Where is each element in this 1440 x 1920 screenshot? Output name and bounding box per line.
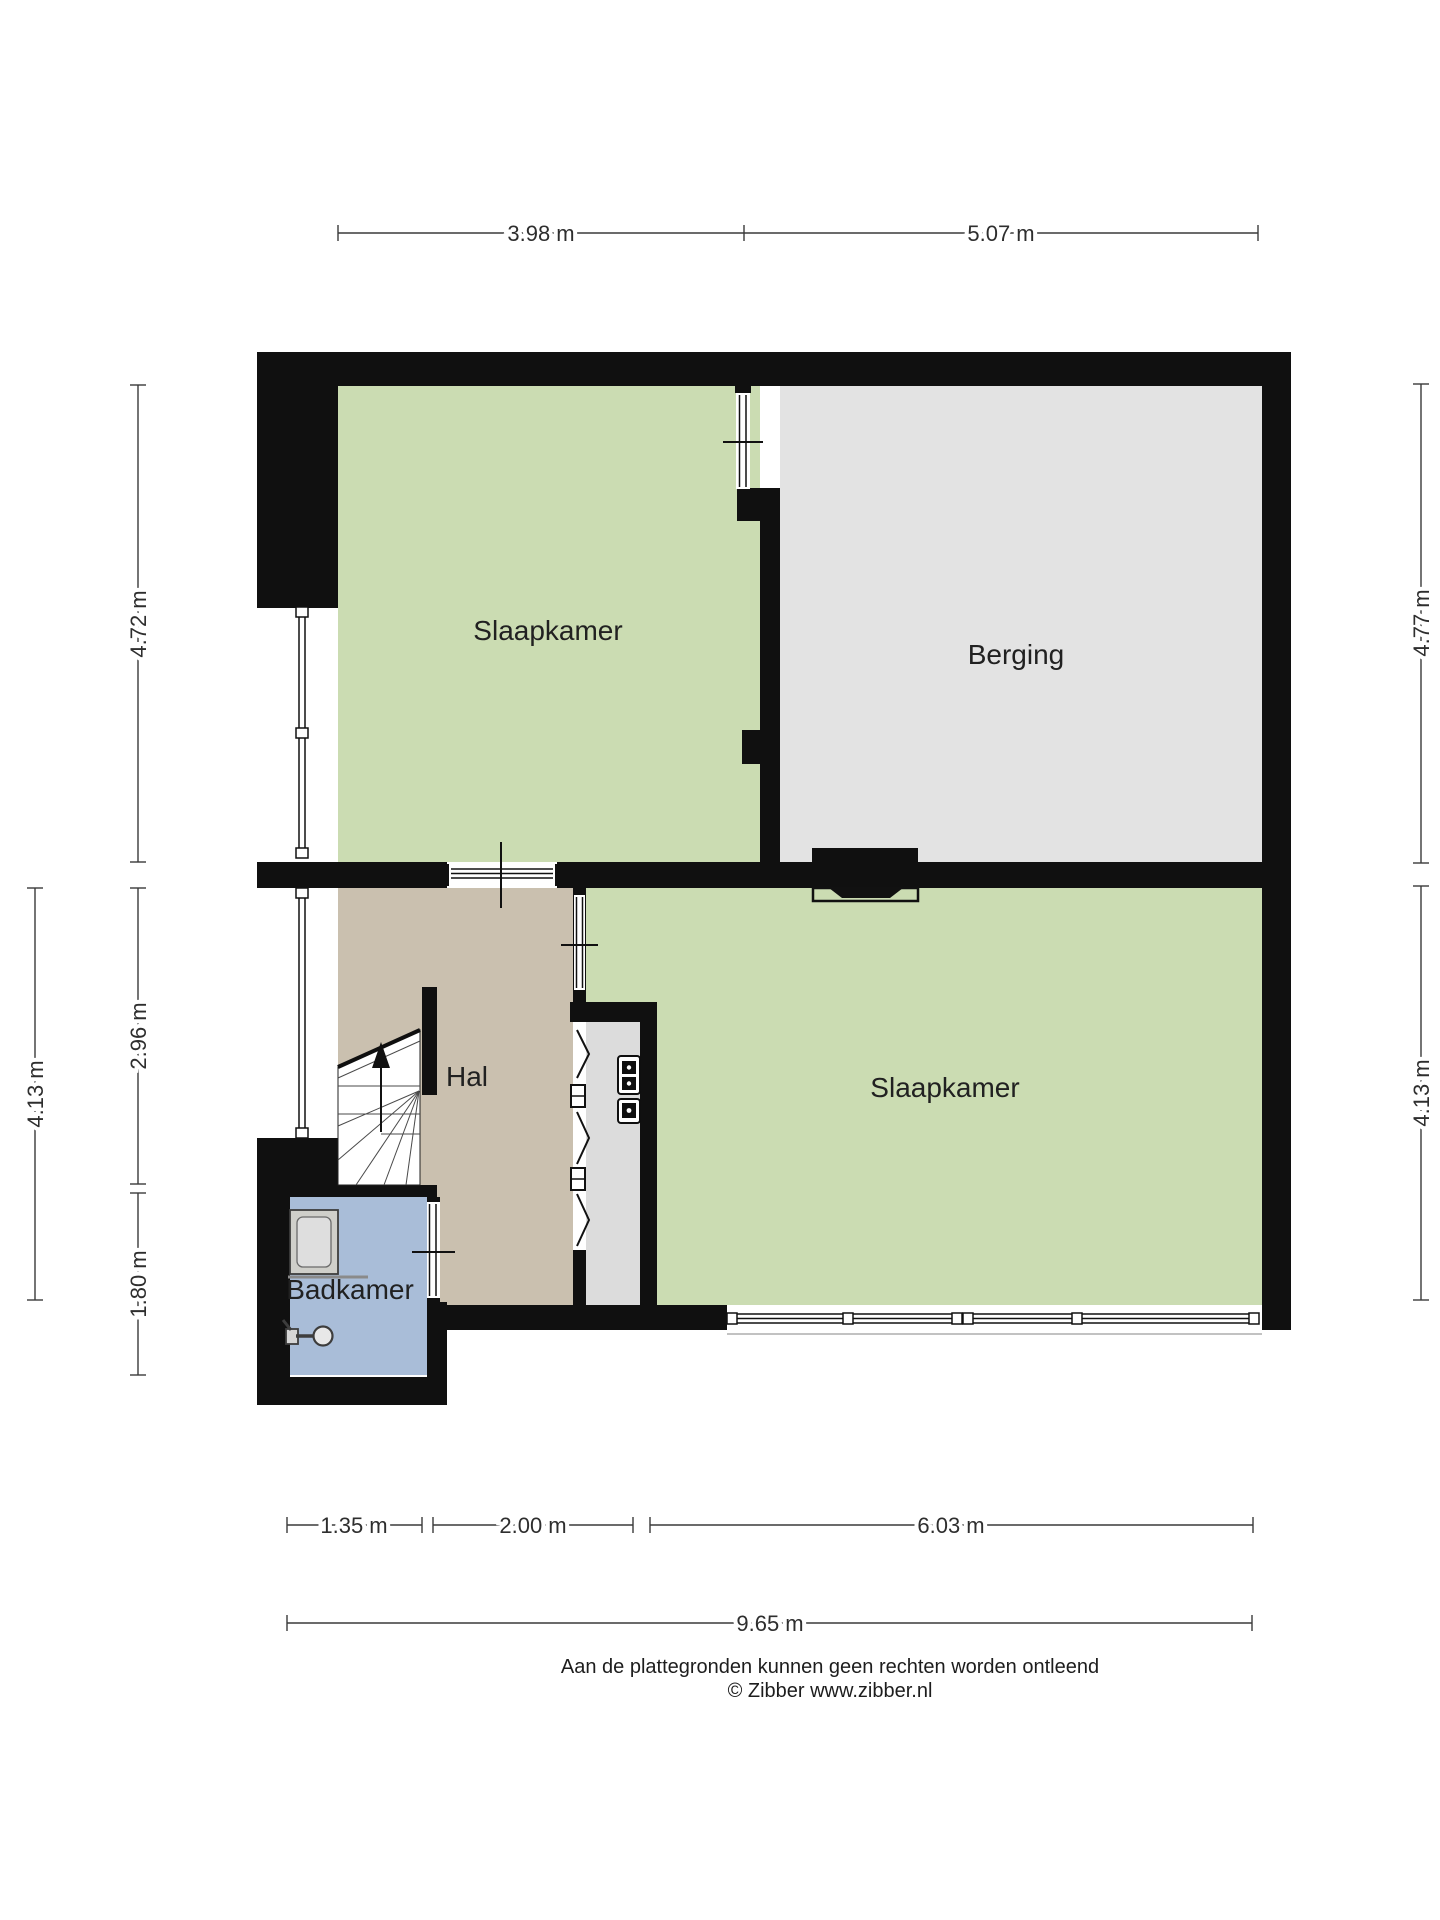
chimney-breast	[812, 848, 918, 863]
wall	[742, 730, 780, 764]
dim-left-472: 4.72 m	[126, 590, 151, 657]
dimension-left-outer: 4.13 m	[23, 888, 48, 1300]
room-berging	[780, 386, 1262, 862]
wall	[737, 488, 780, 521]
wall	[440, 1305, 727, 1330]
dim-bottom-total: 9.65 m	[736, 1611, 803, 1636]
meter-box-icon	[618, 1099, 640, 1123]
floorplan-page: Slaapkamer Berging Slaapkamer Hal Badkam…	[0, 0, 1440, 1920]
dim-right-413: 4.13 m	[1409, 1059, 1434, 1126]
wall	[573, 1250, 586, 1305]
window-left-lower	[257, 888, 338, 1138]
meter-box-icon	[618, 1056, 640, 1094]
wall	[337, 1185, 437, 1197]
wall	[1262, 352, 1291, 1330]
label-berging: Berging	[968, 639, 1065, 670]
label-hal: Hal	[446, 1061, 488, 1092]
dim-right-477: 4.77 m	[1409, 589, 1434, 656]
footer: Aan de plattegronden kunnen geen rechten…	[561, 1656, 1099, 1702]
label-slaapkamer-bottom: Slaapkamer	[870, 1072, 1019, 1103]
dim-bottom-200: 2.00 m	[499, 1513, 566, 1538]
chimney-niche	[813, 888, 918, 901]
label-badkamer: Badkamer	[286, 1274, 414, 1305]
window-left-upper	[257, 607, 338, 858]
meter-icons	[618, 1056, 640, 1123]
footer-copyright: © Zibber www.zibber.nl	[728, 1680, 933, 1702]
dim-bottom-603: 6.03 m	[917, 1513, 984, 1538]
footer-disclaimer: Aan de plattegronden kunnen geen rechten…	[561, 1656, 1099, 1678]
dim-top-right: 5.07 m	[967, 221, 1034, 246]
dimension-bottom: 1.35 m 2.00 m 6.03 m 9.65 m	[287, 1513, 1253, 1636]
wall	[735, 384, 751, 393]
wall-stair-newel	[422, 987, 437, 1095]
label-slaapkamer-top: Slaapkamer	[473, 615, 622, 646]
wall	[257, 862, 1262, 888]
dim-bottom-135: 1.35 m	[320, 1513, 387, 1538]
dim-left-180: 1.80 m	[126, 1250, 151, 1317]
wall	[257, 1377, 447, 1405]
wall	[257, 1138, 338, 1197]
wall	[257, 352, 1291, 386]
dim-left-outer-413: 4.13 m	[23, 1060, 48, 1127]
shower-tray-icon	[290, 1210, 338, 1274]
dimension-left-inner: 4.72 m 2.96 m 1.80 m	[126, 385, 151, 1375]
chimney-flue	[829, 888, 903, 898]
wall	[257, 1197, 290, 1405]
wall	[257, 352, 338, 612]
wall	[760, 488, 780, 862]
dimension-top: 3.98 m 5.07 m	[338, 221, 1258, 246]
window-bottom	[727, 1305, 1262, 1334]
wall	[640, 1022, 657, 1305]
wall	[570, 1002, 657, 1022]
floorplan-canvas: Slaapkamer Berging Slaapkamer Hal Badkam…	[0, 0, 1440, 1920]
dim-top-left: 3.98 m	[507, 221, 574, 246]
dimension-right: 4.77 m 4.13 m	[1409, 384, 1434, 1300]
dim-left-296: 2.96 m	[126, 1002, 151, 1069]
